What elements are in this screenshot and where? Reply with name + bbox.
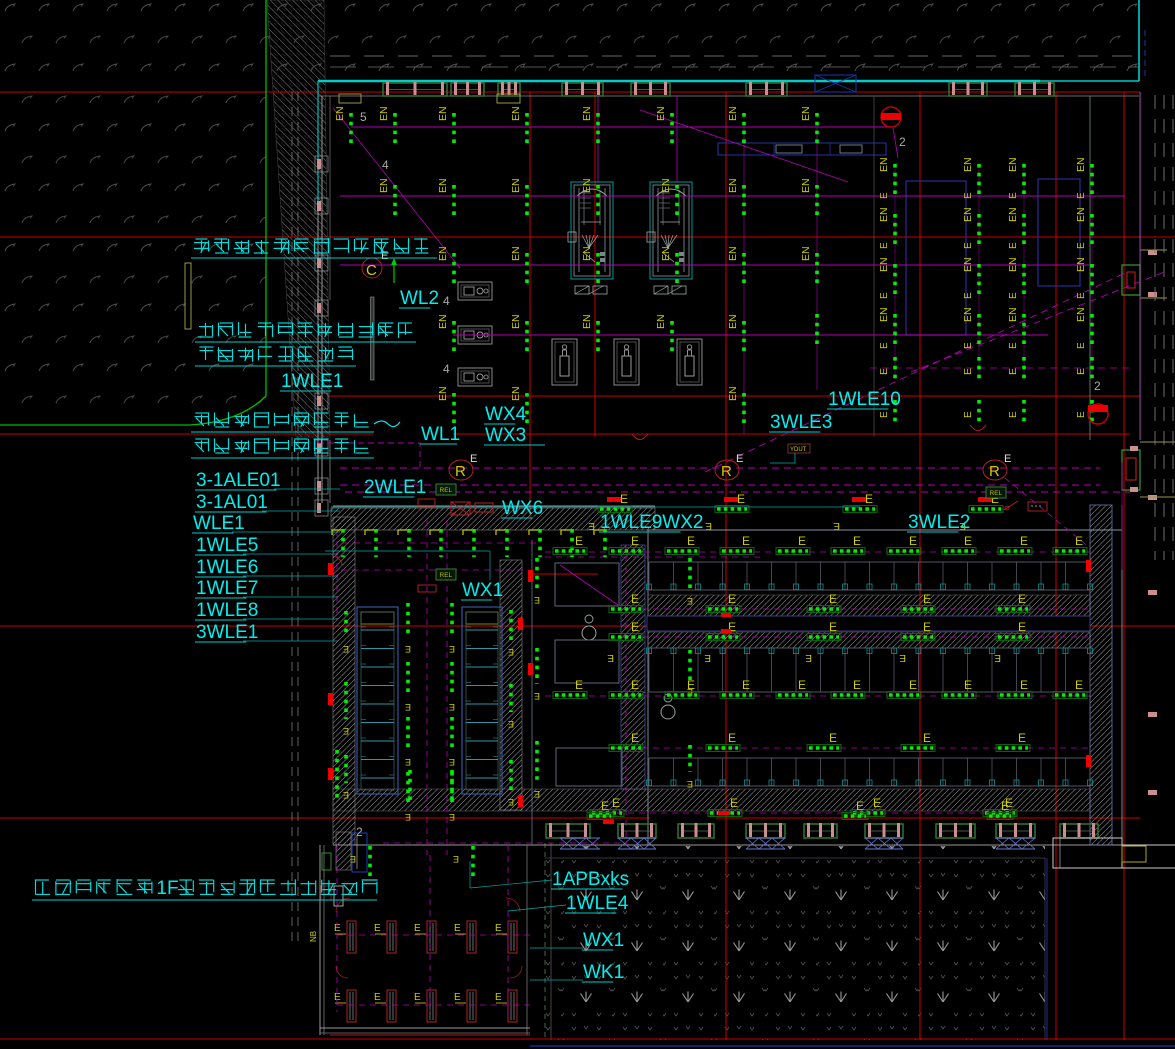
- svg-text:4: 4: [443, 294, 450, 308]
- svg-text:E: E: [601, 799, 609, 813]
- svg-text:E: E: [508, 719, 514, 729]
- svg-text:3-1ALE01: 3-1ALE01: [196, 470, 281, 491]
- svg-text:4: 4: [443, 362, 450, 376]
- svg-text:E: E: [737, 492, 745, 506]
- svg-text:E: E: [508, 647, 514, 657]
- svg-text:EN: EN: [581, 314, 593, 329]
- svg-text:E: E: [350, 854, 356, 864]
- svg-text:EN: EN: [581, 106, 593, 121]
- svg-text:E: E: [454, 992, 461, 1003]
- svg-text:E: E: [687, 534, 695, 548]
- svg-text:E: E: [853, 534, 861, 548]
- svg-text:E: E: [923, 620, 931, 634]
- svg-text:EN: EN: [510, 386, 522, 401]
- svg-text:EN: EN: [962, 207, 974, 222]
- svg-text:EN: EN: [727, 106, 739, 121]
- svg-text:REL: REL: [440, 487, 453, 494]
- svg-text:1APBxks: 1APBxks: [552, 869, 629, 890]
- svg-text:E: E: [414, 923, 421, 934]
- svg-text:E: E: [631, 534, 639, 548]
- svg-text:E: E: [1008, 292, 1019, 299]
- svg-text:E: E: [964, 678, 972, 692]
- svg-text:EN: EN: [437, 106, 449, 121]
- svg-text:E: E: [963, 192, 974, 199]
- svg-text:E: E: [1020, 534, 1028, 548]
- svg-text:EN: EN: [655, 106, 667, 121]
- svg-text:EN: EN: [878, 157, 890, 172]
- svg-text:2: 2: [1094, 379, 1101, 393]
- svg-text:E: E: [1001, 799, 1009, 813]
- svg-text:E: E: [631, 678, 639, 692]
- svg-text:E: E: [453, 854, 459, 864]
- svg-text:EN: EN: [800, 178, 812, 193]
- svg-text:1WLE7: 1WLE7: [196, 578, 258, 599]
- svg-text:1WLE4: 1WLE4: [566, 893, 629, 914]
- svg-text:E: E: [405, 702, 411, 712]
- svg-text:E: E: [534, 789, 540, 799]
- svg-text:E: E: [736, 453, 743, 465]
- svg-text:E: E: [923, 731, 931, 745]
- svg-text:EN: EN: [581, 178, 593, 193]
- svg-text:E: E: [631, 620, 639, 634]
- svg-text:E: E: [495, 992, 502, 1003]
- svg-text:EN: EN: [510, 314, 522, 329]
- svg-text:E: E: [449, 757, 455, 767]
- svg-text:E: E: [414, 992, 421, 1003]
- svg-text:EN: EN: [800, 106, 812, 121]
- svg-text:E: E: [343, 726, 349, 736]
- svg-text:2: 2: [899, 135, 906, 149]
- svg-text:EN: EN: [962, 157, 974, 172]
- svg-text:E: E: [374, 992, 381, 1003]
- svg-text:E: E: [449, 812, 455, 822]
- svg-text:E: E: [728, 592, 736, 606]
- svg-text:WX6: WX6: [502, 498, 543, 519]
- svg-text:E: E: [879, 242, 890, 249]
- svg-text:EN: EN: [510, 246, 522, 261]
- svg-text:E: E: [856, 799, 864, 813]
- svg-text:E: E: [1007, 368, 1019, 375]
- svg-text:3WLE2: 3WLE2: [908, 512, 970, 533]
- svg-text:E: E: [405, 812, 411, 822]
- svg-text:E: E: [454, 923, 461, 934]
- svg-text:E: E: [449, 644, 455, 654]
- svg-text:E: E: [1018, 620, 1026, 634]
- svg-text:E: E: [963, 342, 974, 349]
- svg-text:EN: EN: [727, 314, 739, 329]
- svg-text:E: E: [607, 652, 614, 663]
- svg-text:1F: 1F: [156, 878, 178, 899]
- svg-text:1WLE6: 1WLE6: [196, 557, 258, 578]
- svg-text:2: 2: [356, 825, 363, 839]
- svg-text:EN: EN: [510, 178, 522, 193]
- svg-text:E: E: [1018, 731, 1026, 745]
- svg-text:E: E: [575, 534, 583, 548]
- svg-text:E: E: [879, 192, 890, 199]
- svg-text:EN: EN: [1007, 257, 1019, 272]
- svg-text:E: E: [1075, 368, 1087, 375]
- svg-text:E: E: [534, 691, 540, 701]
- svg-text:E: E: [879, 342, 890, 349]
- svg-text:WX1: WX1: [583, 930, 624, 951]
- svg-text:E: E: [1004, 453, 1011, 465]
- svg-text:R: R: [989, 463, 1000, 480]
- svg-text:1WLE5: 1WLE5: [196, 535, 258, 556]
- svg-text:E: E: [381, 250, 388, 262]
- svg-text:EN: EN: [437, 314, 449, 329]
- svg-text:NB: NB: [309, 931, 318, 942]
- svg-text:EN: EN: [1075, 207, 1087, 222]
- svg-text:E: E: [865, 492, 873, 506]
- svg-text:EN: EN: [727, 386, 739, 401]
- svg-text:E: E: [879, 411, 890, 418]
- svg-text:EN: EN: [727, 246, 739, 261]
- svg-text:E: E: [1076, 242, 1087, 249]
- svg-text:WLE1: WLE1: [193, 513, 245, 534]
- svg-text:E: E: [829, 620, 837, 634]
- svg-text:E: E: [833, 520, 840, 531]
- svg-text:E: E: [742, 534, 750, 548]
- svg-text:E: E: [923, 592, 931, 606]
- svg-text:E: E: [334, 992, 341, 1003]
- svg-text:EN: EN: [878, 307, 890, 322]
- svg-text:EN: EN: [727, 178, 739, 193]
- svg-text:EN: EN: [660, 178, 672, 193]
- svg-text:E: E: [962, 368, 974, 375]
- svg-text:E: E: [742, 678, 750, 692]
- svg-text:E: E: [687, 596, 693, 606]
- svg-text:E: E: [899, 652, 906, 663]
- svg-text:E: E: [687, 678, 695, 692]
- svg-text:WL2: WL2: [400, 288, 439, 309]
- svg-text:EN: EN: [800, 246, 812, 261]
- svg-text:E: E: [405, 644, 411, 654]
- svg-text:EN: EN: [962, 307, 974, 322]
- svg-text:WL1: WL1: [421, 424, 460, 445]
- svg-text:EN: EN: [510, 106, 522, 121]
- svg-text:WX3: WX3: [485, 425, 526, 446]
- svg-text:E: E: [343, 790, 349, 800]
- svg-text:4: 4: [382, 158, 389, 172]
- svg-text:E: E: [1076, 411, 1087, 418]
- svg-text:E: E: [1075, 678, 1083, 692]
- svg-text:WX4: WX4: [485, 404, 527, 425]
- svg-text:E: E: [588, 520, 595, 531]
- svg-text:R: R: [721, 463, 732, 480]
- svg-text:E: E: [878, 368, 890, 375]
- svg-text:EN: EN: [1007, 207, 1019, 222]
- svg-text:C: C: [366, 262, 377, 279]
- svg-text:E: E: [1020, 678, 1028, 692]
- svg-text:EN: EN: [437, 386, 449, 401]
- svg-text:E: E: [963, 292, 974, 299]
- svg-text:E: E: [829, 731, 837, 745]
- svg-text:E: E: [1018, 592, 1026, 606]
- svg-text:E: E: [805, 652, 812, 663]
- svg-text:EN: EN: [334, 106, 346, 121]
- svg-text:EN: EN: [1075, 257, 1087, 272]
- svg-text:EN: EN: [962, 257, 974, 272]
- svg-text:E: E: [1008, 411, 1019, 418]
- svg-text:2WLE1: 2WLE1: [364, 477, 426, 498]
- svg-text:EN: EN: [655, 314, 667, 329]
- svg-text:EN: EN: [378, 106, 390, 121]
- svg-text:E: E: [963, 411, 974, 418]
- svg-text:E: E: [1076, 192, 1087, 199]
- svg-text:3-1AL01: 3-1AL01: [196, 492, 268, 513]
- svg-text:E: E: [1076, 342, 1087, 349]
- svg-text:E: E: [704, 652, 711, 663]
- svg-text:E: E: [449, 702, 455, 712]
- svg-text:E: E: [963, 242, 974, 249]
- svg-text:E: E: [994, 652, 1001, 663]
- svg-text:EN: EN: [437, 246, 449, 261]
- svg-text:E: E: [705, 520, 712, 531]
- svg-text:E: E: [1008, 242, 1019, 249]
- svg-text:E: E: [879, 292, 890, 299]
- svg-text:EN: EN: [378, 178, 390, 193]
- svg-text:E: E: [730, 796, 738, 810]
- svg-text:E: E: [728, 731, 736, 745]
- svg-text:EN: EN: [660, 246, 672, 261]
- svg-text:E: E: [964, 534, 972, 548]
- svg-text:REL: REL: [440, 572, 453, 579]
- svg-text:E: E: [798, 534, 806, 548]
- svg-text:YDUT: YDUT: [790, 447, 807, 453]
- svg-text:1WLE9WX2: 1WLE9WX2: [600, 512, 703, 533]
- svg-text:E: E: [343, 644, 349, 654]
- svg-text:E: E: [1076, 292, 1087, 299]
- svg-text:EN: EN: [1075, 307, 1087, 322]
- svg-text:EN: EN: [437, 178, 449, 193]
- svg-text:E: E: [612, 796, 620, 810]
- svg-text:E: E: [829, 592, 837, 606]
- svg-text:E: E: [909, 534, 917, 548]
- svg-text:1WLE8: 1WLE8: [196, 600, 258, 621]
- svg-text:E: E: [374, 923, 381, 934]
- svg-text:EN: EN: [878, 207, 890, 222]
- svg-text:E: E: [631, 731, 639, 745]
- svg-text:WK1: WK1: [583, 962, 624, 983]
- svg-text:5: 5: [360, 110, 367, 124]
- svg-text:1WLE1: 1WLE1: [281, 371, 343, 392]
- svg-text:E: E: [1008, 342, 1019, 349]
- svg-text:R: R: [455, 463, 466, 480]
- svg-text:E: E: [798, 678, 806, 692]
- svg-text:E: E: [631, 592, 639, 606]
- svg-text:E: E: [470, 453, 477, 465]
- svg-text:3WLE3: 3WLE3: [770, 412, 832, 433]
- svg-text:E: E: [575, 678, 583, 692]
- svg-text:E: E: [495, 923, 502, 934]
- svg-text:E: E: [853, 678, 861, 692]
- svg-text:1WLE10: 1WLE10: [828, 389, 901, 410]
- svg-text:E: E: [873, 796, 881, 810]
- svg-text:E: E: [334, 923, 341, 934]
- svg-text:WX1: WX1: [462, 580, 503, 601]
- svg-text:EN: EN: [581, 246, 593, 261]
- svg-text:EN: EN: [1007, 307, 1019, 322]
- svg-text:E: E: [1008, 192, 1019, 199]
- svg-text:EN: EN: [878, 257, 890, 272]
- svg-text:3WLE1: 3WLE1: [196, 622, 258, 643]
- svg-text:E: E: [909, 678, 917, 692]
- svg-text:E: E: [534, 595, 540, 605]
- svg-text:E: E: [508, 797, 514, 807]
- svg-text:EN: EN: [1075, 157, 1087, 172]
- svg-text:EN: EN: [1007, 157, 1019, 172]
- svg-text:REL: REL: [990, 490, 1003, 497]
- svg-text:E: E: [687, 779, 693, 789]
- svg-text:E: E: [405, 757, 411, 767]
- svg-text:E: E: [620, 492, 628, 506]
